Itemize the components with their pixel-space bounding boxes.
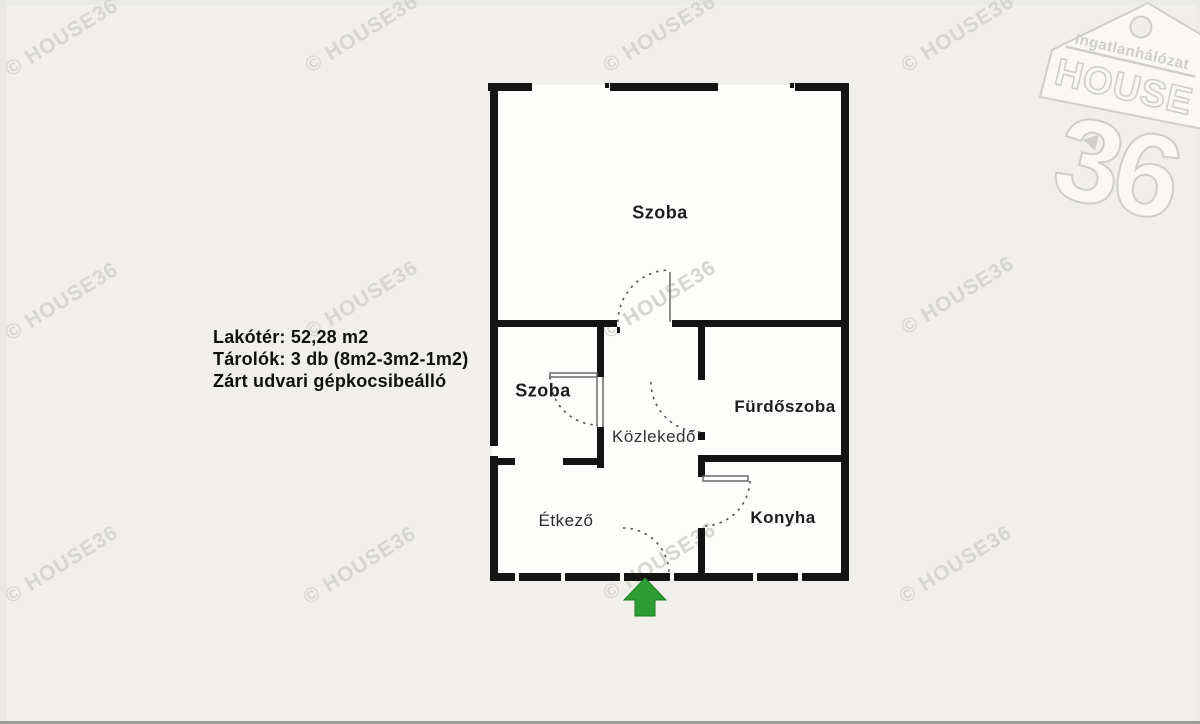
door-jamb-tick — [617, 327, 620, 333]
living-room-door-arc — [618, 270, 670, 322]
storage-line: Tárolók: 3 db (8m2-3m2-1m2) — [213, 348, 468, 370]
window-tick — [605, 83, 609, 88]
window-tick — [790, 83, 794, 88]
kitchen-door-arc — [705, 481, 750, 526]
room-label-bathroom: Fürdőszoba — [734, 397, 835, 417]
bedroom-door-leaf — [550, 373, 597, 377]
door-leaves — [550, 272, 748, 481]
bathroom-door-arc — [651, 382, 701, 432]
kitchen-door-leaf — [703, 476, 748, 481]
parking-line: Zárt udvari gépkocsibeálló — [213, 370, 468, 392]
floorplan-drawing — [0, 0, 1200, 724]
property-info: Lakótér: 52,28 m2 Tárolók: 3 db (8m2-3m2… — [213, 326, 468, 392]
room-label-living-room: Szoba — [632, 203, 688, 224]
door-jamb-tick — [698, 432, 705, 440]
walls — [488, 83, 849, 581]
entrance-door-arc — [623, 528, 669, 572]
living-area-line: Lakótér: 52,28 m2 — [213, 326, 468, 348]
room-label-kitchen: Konyha — [750, 508, 815, 528]
room-label-bedroom: Szoba — [515, 381, 571, 402]
entrance-arrow — [624, 578, 666, 616]
room-label-hallway: Közlekedő — [612, 427, 696, 447]
room-label-dining: Étkező — [539, 511, 594, 531]
